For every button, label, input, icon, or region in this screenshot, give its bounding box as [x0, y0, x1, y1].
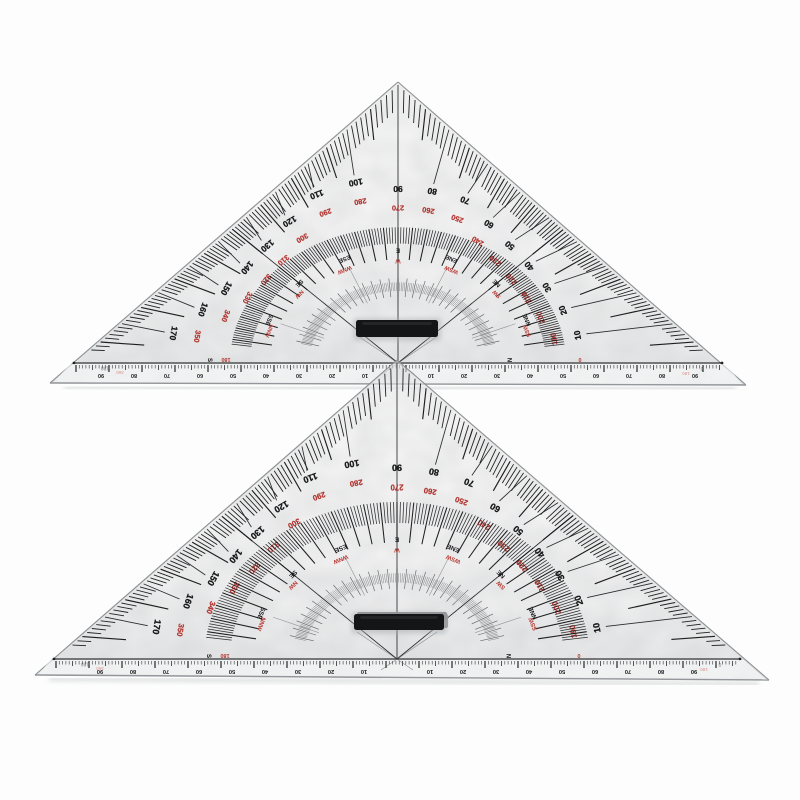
svg-text:20: 20: [460, 668, 466, 674]
svg-text:W: W: [394, 546, 400, 552]
svg-text:70: 70: [164, 372, 170, 378]
svg-text:10: 10: [572, 329, 584, 340]
svg-text:30: 30: [295, 668, 301, 674]
svg-text:N: N: [508, 358, 514, 362]
svg-text:90: 90: [392, 463, 402, 473]
svg-text:W: W: [395, 258, 401, 264]
svg-text:E: E: [395, 535, 399, 542]
svg-text:40: 40: [526, 668, 532, 674]
svg-text:E: E: [396, 247, 400, 253]
svg-text:10: 10: [428, 372, 434, 378]
svg-text:80: 80: [131, 372, 137, 378]
svg-text:80: 80: [428, 466, 440, 478]
svg-text:30: 30: [493, 668, 499, 674]
svg-text:0: 0: [578, 356, 581, 362]
svg-text:90: 90: [691, 668, 697, 674]
svg-text:20: 20: [328, 668, 334, 674]
svg-text:50: 50: [229, 668, 235, 674]
svg-text:S: S: [206, 358, 212, 362]
svg-text:0: 0: [577, 652, 580, 658]
svg-text:10: 10: [361, 668, 367, 674]
svg-text:70: 70: [625, 668, 631, 674]
svg-text:40: 40: [262, 668, 268, 674]
svg-text:60: 60: [197, 372, 203, 378]
svg-text:270: 270: [392, 204, 404, 213]
svg-text:50: 50: [560, 372, 566, 378]
svg-text:20: 20: [461, 372, 467, 378]
svg-text:270: 270: [390, 483, 404, 492]
svg-text:40: 40: [263, 372, 269, 378]
svg-text:70: 70: [163, 668, 169, 674]
svg-text:30: 30: [494, 372, 500, 378]
svg-text:50: 50: [230, 372, 236, 378]
svg-text:60: 60: [592, 668, 598, 674]
svg-text:70: 70: [626, 372, 632, 378]
svg-text:60: 60: [593, 372, 599, 378]
svg-text:90: 90: [692, 372, 698, 378]
svg-text:60: 60: [196, 668, 202, 674]
svg-text:10: 10: [591, 622, 603, 634]
svg-text:80: 80: [426, 186, 437, 198]
svg-text:30: 30: [296, 372, 302, 378]
svg-text:90: 90: [393, 184, 403, 194]
svg-text:N: N: [507, 654, 513, 658]
svg-text:180: 180: [221, 356, 230, 362]
svg-text:90: 90: [98, 372, 104, 378]
svg-text:S: S: [205, 654, 211, 658]
svg-text:80: 80: [659, 372, 665, 378]
svg-text:80: 80: [130, 668, 136, 674]
svg-text:40: 40: [527, 372, 533, 378]
svg-text:180: 180: [220, 652, 229, 658]
svg-text:90: 90: [97, 668, 103, 674]
svg-text:10: 10: [362, 372, 368, 378]
svg-text:50: 50: [559, 668, 565, 674]
svg-text:10: 10: [427, 668, 433, 674]
svg-text:80: 80: [658, 668, 664, 674]
svg-text:20: 20: [329, 372, 335, 378]
